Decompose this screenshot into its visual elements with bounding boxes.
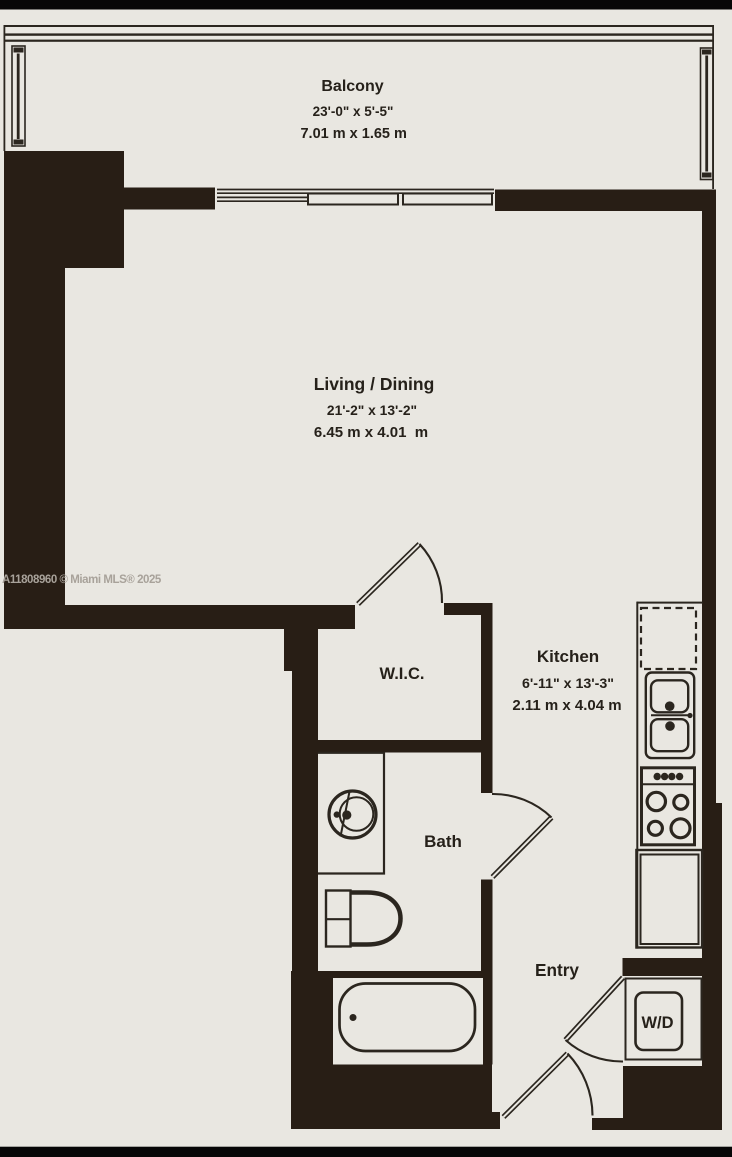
svg-text:Balcony: Balcony (321, 78, 383, 95)
svg-text:W/D: W/D (641, 1014, 673, 1032)
svg-text:2.11 m x 4.04 m: 2.11 m x 4.04 m (512, 697, 621, 714)
svg-text:Living / Dining: Living / Dining (314, 374, 435, 394)
svg-text:Bath: Bath (424, 832, 462, 851)
svg-text:A11808960 © Miami MLS® 2025: A11808960 © Miami MLS® 2025 (2, 574, 162, 586)
svg-text:23'-0" x 5'-5": 23'-0" x 5'-5" (313, 104, 394, 119)
svg-text:7.01 m x 1.65 m: 7.01 m x 1.65 m (300, 126, 406, 142)
svg-text:Kitchen: Kitchen (537, 647, 599, 666)
svg-text:6'-11" x 13'-3": 6'-11" x 13'-3" (522, 676, 614, 692)
svg-text:21'-2" x 13'-2": 21'-2" x 13'-2" (327, 403, 417, 418)
svg-text:W.I.C.: W.I.C. (380, 665, 425, 683)
svg-text:6.45 m x 4.01 m: 6.45 m x 4.01 m (314, 424, 428, 441)
svg-text:Entry: Entry (535, 960, 579, 980)
